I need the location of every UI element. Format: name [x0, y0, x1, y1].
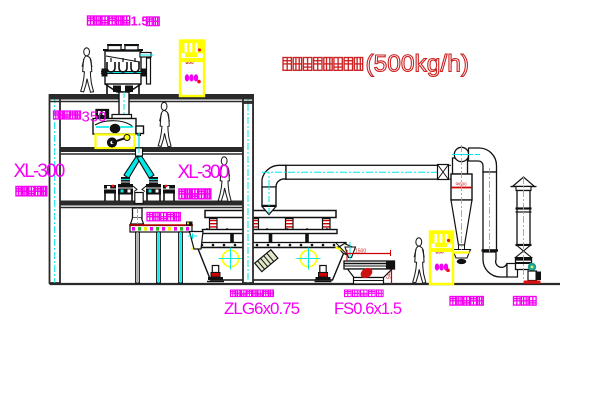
svg-text:FS0.6x1.5: FS0.6x1.5: [334, 300, 402, 318]
svg-text:ZLG6x0.75: ZLG6x0.75: [224, 299, 300, 318]
svg-text:350: 350: [82, 109, 107, 126]
svg-text:1500: 1500: [355, 249, 366, 255]
svg-text:(500kg/h): (500kg/h): [366, 51, 470, 78]
svg-text:XL-300: XL-300: [178, 162, 229, 183]
svg-text:XL-300: XL-300: [14, 161, 65, 182]
